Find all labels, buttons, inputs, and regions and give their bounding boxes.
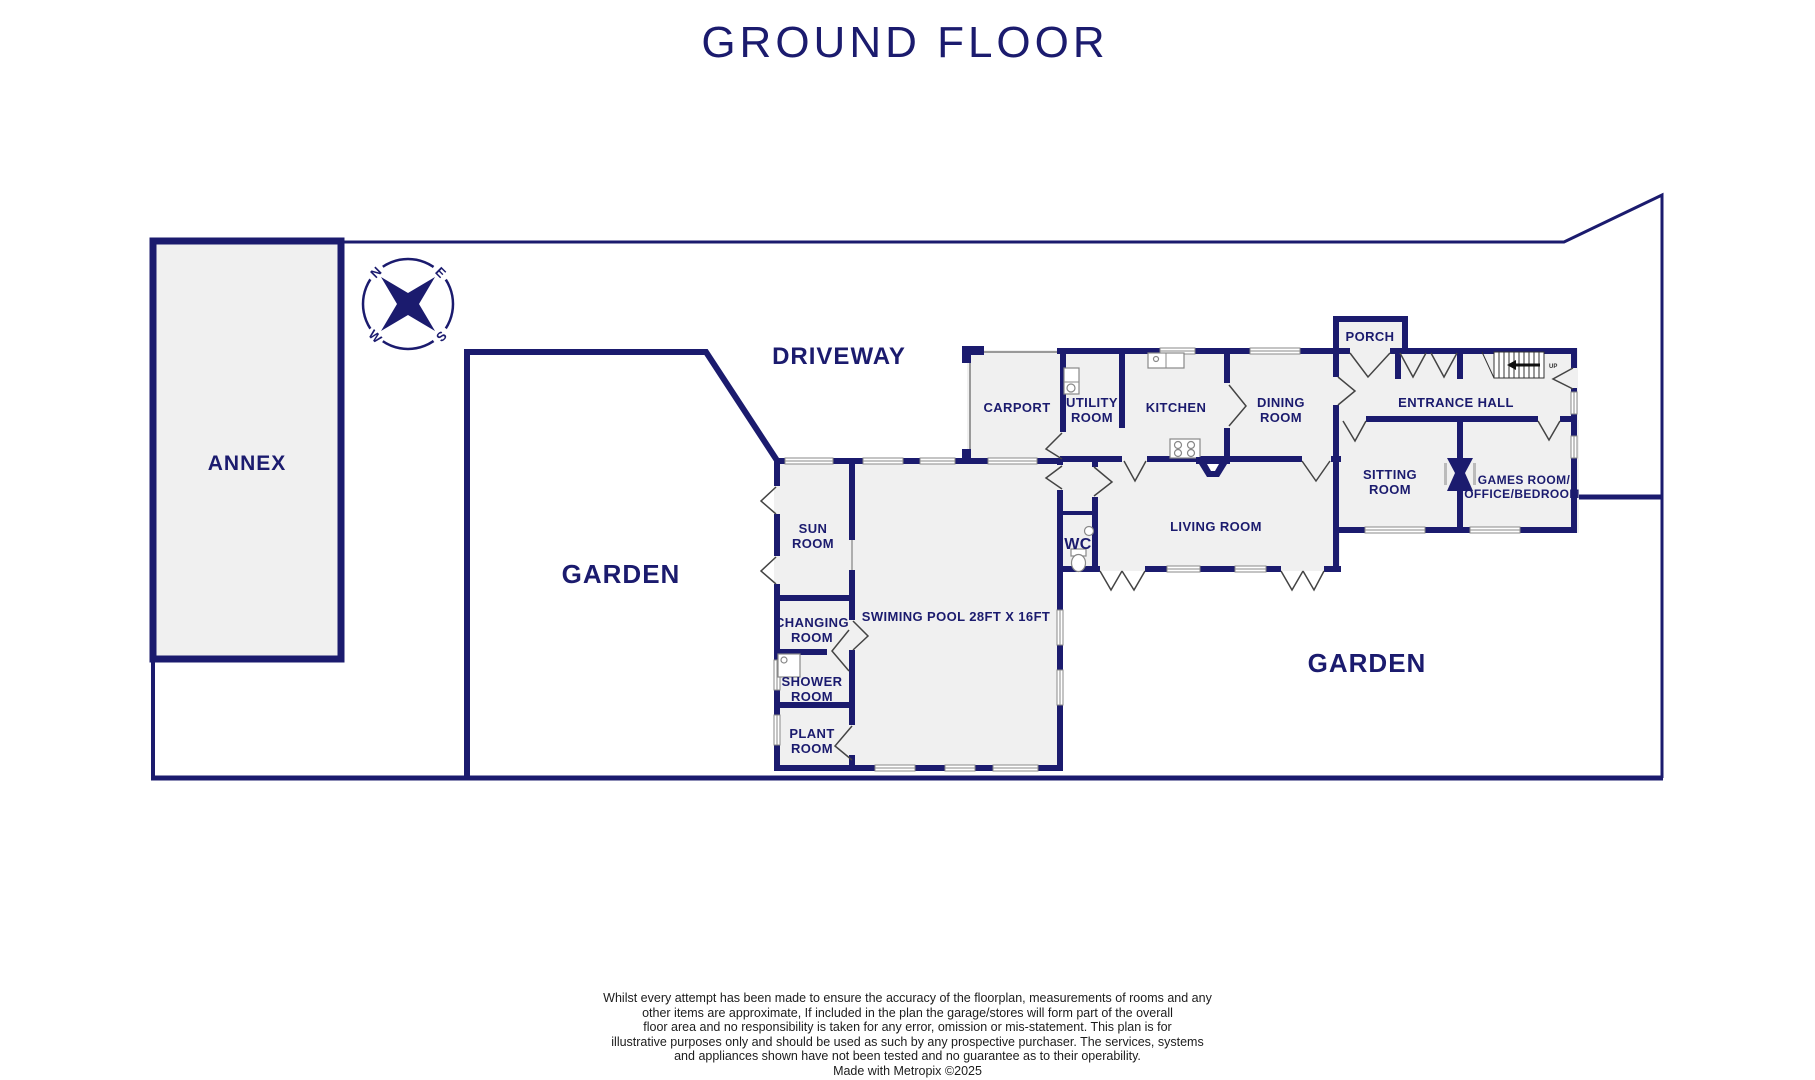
- disclaimer-line: and appliances shown have not been teste…: [0, 1049, 1815, 1064]
- stove-icon: [1170, 439, 1200, 458]
- window: [1571, 436, 1577, 458]
- stairs-up-label: UP: [1549, 364, 1557, 370]
- window: [774, 715, 780, 745]
- disclaimer-line: illustrative purposes only and should be…: [0, 1035, 1815, 1050]
- changing-label-2: ROOM: [791, 630, 833, 645]
- kitchen-label: KITCHEN: [1146, 400, 1207, 415]
- entrance-hall-label: ENTRANCE HALL: [1398, 395, 1514, 410]
- sitting-label-2: ROOM: [1369, 482, 1411, 497]
- window: [1057, 610, 1063, 645]
- carport-label: CARPORT: [983, 400, 1050, 415]
- window: [920, 458, 955, 464]
- games-label-1: GAMES ROOM/: [1478, 473, 1571, 487]
- window: [1167, 566, 1200, 572]
- window: [863, 458, 903, 464]
- window: [1235, 566, 1266, 572]
- window: [1571, 392, 1577, 414]
- driveway-label: DRIVEWAY: [772, 343, 906, 370]
- window: [988, 458, 1037, 464]
- utility-label-1: UTILITY: [1066, 395, 1118, 410]
- window: [1365, 527, 1425, 533]
- annex-building: [153, 241, 341, 659]
- sun-label-1: SUN: [799, 521, 828, 536]
- floorplan-page: UP: [0, 0, 1815, 1080]
- garden-right-label: GARDEN: [1308, 648, 1427, 678]
- wc-basin-icon: [1085, 527, 1094, 536]
- carport-post-top2: [962, 346, 971, 363]
- annex-label: ANNEX: [208, 452, 287, 475]
- disclaimer-line: Whilst every attempt has been made to en…: [0, 991, 1815, 1006]
- dining-label-2: ROOM: [1260, 410, 1302, 425]
- sun-label-2: ROOM: [792, 536, 834, 551]
- games-label-2: OFFICE/BEDROOM: [1464, 487, 1580, 501]
- dining-label-1: DINING: [1257, 395, 1305, 410]
- washing-machine-icon: [1064, 368, 1079, 394]
- window: [1470, 527, 1520, 533]
- window: [1057, 670, 1063, 705]
- kitchen-sink-icon: [1148, 353, 1184, 368]
- utility-label-2: ROOM: [1071, 410, 1113, 425]
- plant-label-2: ROOM: [791, 741, 833, 756]
- window: [1250, 348, 1300, 354]
- compass-star: [381, 277, 435, 331]
- compass-icon: N E S W: [363, 259, 453, 349]
- disclaimer-line: floor area and no responsibility is take…: [0, 1020, 1815, 1035]
- page-title: GROUND FLOOR: [701, 18, 1108, 67]
- sitting-label-1: SITTING: [1363, 467, 1417, 482]
- porch-label: PORCH: [1346, 329, 1395, 344]
- shower-label-1: SHOWER: [782, 674, 843, 689]
- window: [875, 765, 915, 771]
- wc-label: WC: [1064, 536, 1092, 553]
- floorplan-svg: UP: [0, 0, 1815, 1080]
- window: [993, 765, 1038, 771]
- garden-left-label: GARDEN: [562, 559, 681, 589]
- disclaimer-line: Made with Metropix ©2025: [0, 1064, 1815, 1079]
- disclaimer-block: Whilst every attempt has been made to en…: [0, 991, 1815, 1078]
- changing-label-1: CHANGING: [775, 615, 849, 630]
- plant-label-1: PLANT: [789, 726, 834, 741]
- living-wc-floor: [1058, 459, 1340, 571]
- window: [785, 458, 833, 464]
- living-label: LIVING ROOM: [1170, 519, 1262, 534]
- pool-label: SWIMING POOL 28FT X 16FT: [862, 609, 1051, 624]
- shower-label-2: ROOM: [791, 689, 833, 704]
- disclaimer-line: other items are approximate, If included…: [0, 1006, 1815, 1021]
- house-floor-fills: [774, 316, 1579, 771]
- window: [945, 765, 975, 771]
